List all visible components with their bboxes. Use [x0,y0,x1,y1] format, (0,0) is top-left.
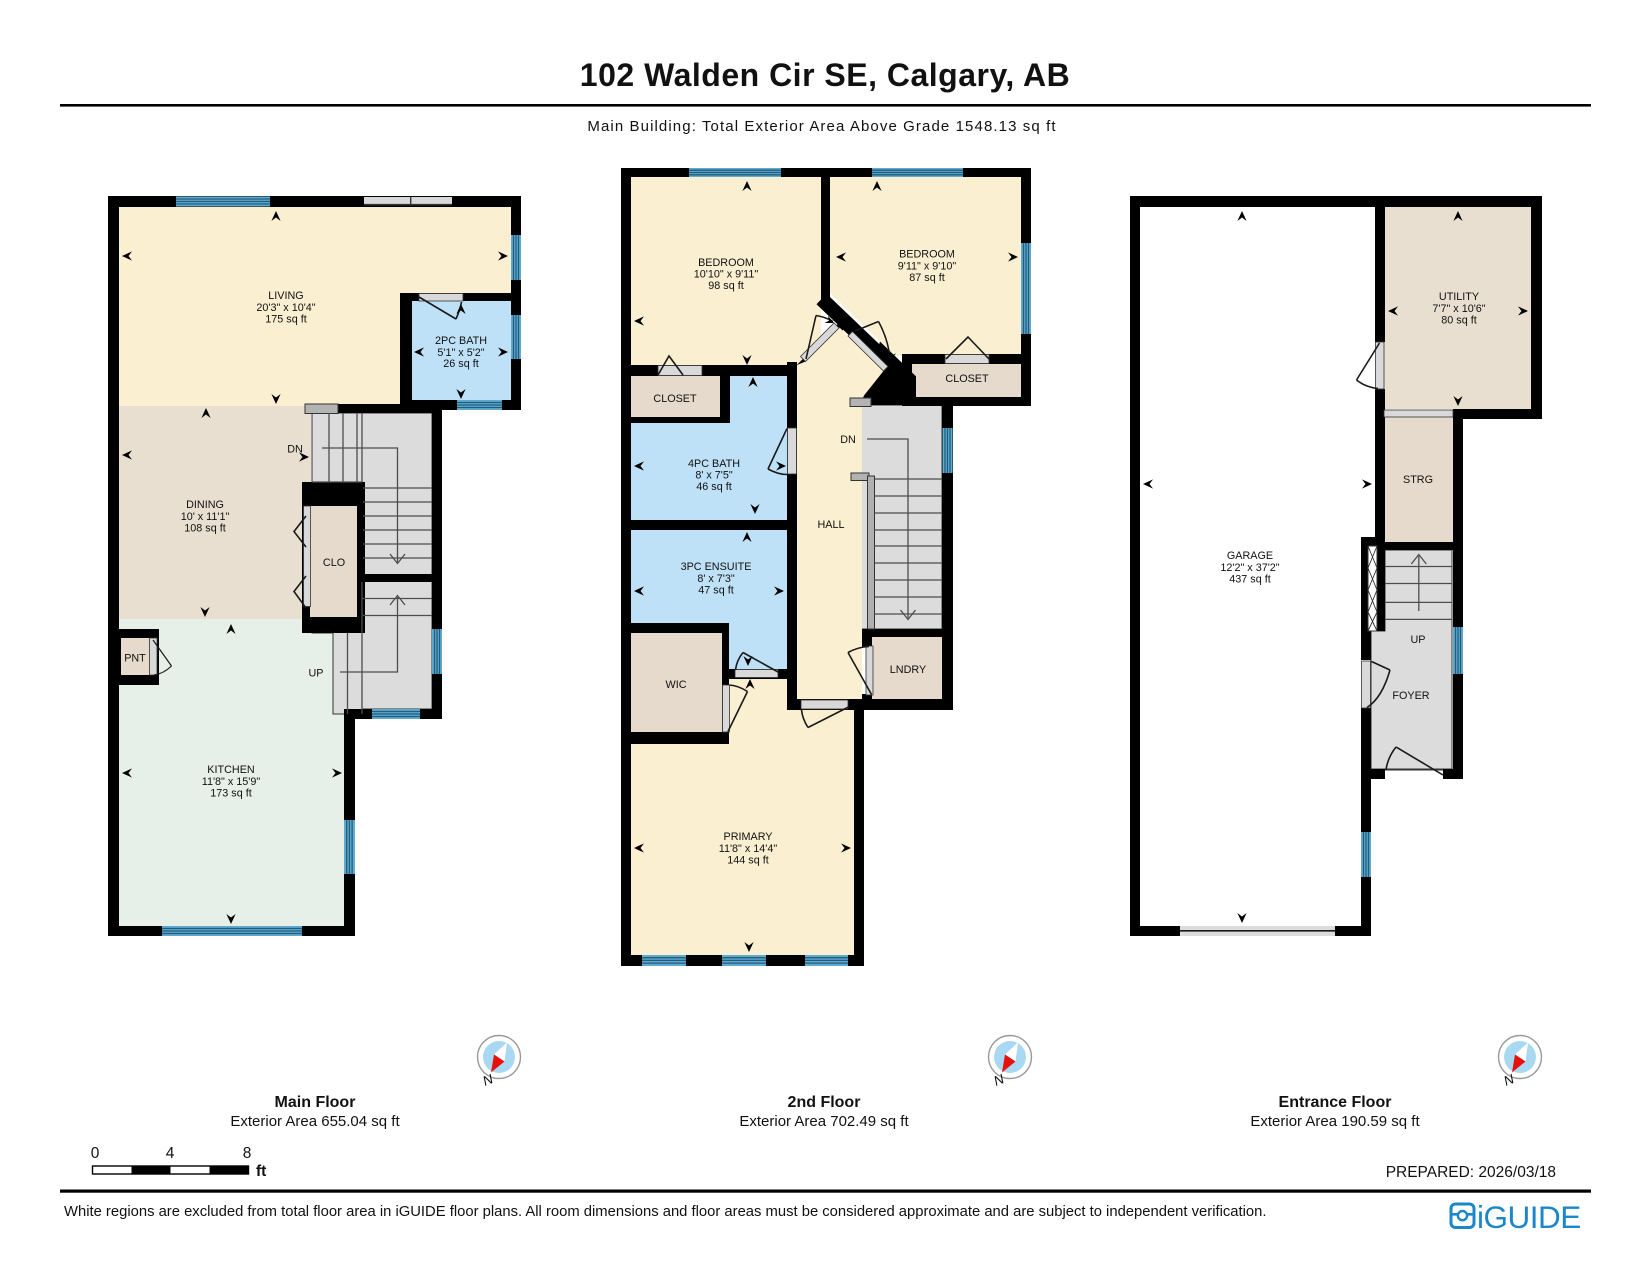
svg-text:Main Floor: Main Floor [275,1094,356,1111]
svg-text:Entrance Floor: Entrance Floor [1279,1094,1392,1111]
svg-text:Exterior Area 702.49 sq ft: Exterior Area 702.49 sq ft [739,1113,909,1130]
svg-text:PRIMARY: PRIMARY [724,831,773,843]
svg-text:11'8" x 15'9": 11'8" x 15'9" [202,776,261,788]
svg-text:PREPARED: 2026/03/18: PREPARED: 2026/03/18 [1386,1164,1556,1181]
svg-text:20'3" x 10'4": 20'3" x 10'4" [256,302,315,314]
svg-text:PNT: PNT [124,653,146,665]
svg-text:102 Walden Cir SE, Calgary, AB: 102 Walden Cir SE, Calgary, AB [580,57,1070,93]
svg-text:8: 8 [243,1145,252,1162]
svg-text:Main Building: Total Exterior: Main Building: Total Exterior Area Above… [587,118,1056,135]
svg-text:ft: ft [256,1163,266,1180]
svg-text:CLOSET: CLOSET [945,373,989,385]
svg-text:GARAGE: GARAGE [1227,550,1273,562]
svg-text:2nd Floor: 2nd Floor [788,1094,861,1111]
svg-text:iGUIDE: iGUIDE [1477,1199,1581,1235]
svg-text:CLOSET: CLOSET [653,393,697,405]
svg-text:White regions are excluded fro: White regions are excluded from total fl… [64,1204,1266,1220]
svg-text:CLO: CLO [323,557,345,569]
svg-text:47 sq ft: 47 sq ft [698,585,733,597]
svg-text:12'2" x 37'2": 12'2" x 37'2" [1220,562,1279,574]
svg-text:80 sq ft: 80 sq ft [1441,315,1476,327]
svg-text:WIC: WIC [666,679,687,691]
svg-text:HALL: HALL [817,519,844,531]
svg-text:9'11" x 9'10": 9'11" x 9'10" [898,261,957,273]
svg-text:LNDRY: LNDRY [890,664,926,676]
svg-text:0: 0 [91,1145,100,1162]
svg-text:144 sq ft: 144 sq ft [727,855,768,867]
svg-text:LIVING: LIVING [268,290,303,302]
svg-text:26 sq ft: 26 sq ft [443,358,478,370]
svg-text:87 sq ft: 87 sq ft [909,272,944,284]
svg-text:8' x 7'5": 8' x 7'5" [695,470,733,482]
svg-text:46 sq ft: 46 sq ft [696,481,731,493]
svg-text:BEDROOM: BEDROOM [899,249,955,261]
svg-text:BEDROOM: BEDROOM [698,257,754,269]
svg-text:UTILITY: UTILITY [1439,291,1479,303]
svg-text:UP: UP [309,668,324,680]
svg-text:3PC ENSUITE: 3PC ENSUITE [681,561,752,573]
svg-text:Exterior Area 190.59 sq ft: Exterior Area 190.59 sq ft [1250,1113,1420,1130]
svg-text:DINING: DINING [186,499,224,511]
svg-text:11'8" x 14'4": 11'8" x 14'4" [719,843,778,855]
svg-text:175 sq ft: 175 sq ft [265,314,306,326]
svg-text:FOYER: FOYER [1392,690,1429,702]
svg-text:UP: UP [1411,634,1426,646]
svg-text:10'10" x 9'11": 10'10" x 9'11" [694,269,759,281]
svg-text:2PC BATH: 2PC BATH [435,335,487,347]
svg-text:7'7" x 10'6": 7'7" x 10'6" [1432,303,1485,315]
svg-text:DN: DN [840,434,856,446]
svg-text:Exterior Area 655.04 sq ft: Exterior Area 655.04 sq ft [230,1113,400,1130]
svg-text:4: 4 [166,1145,175,1162]
svg-text:4PC BATH: 4PC BATH [688,458,740,470]
svg-text:108 sq ft: 108 sq ft [184,523,225,535]
svg-text:437 sq ft: 437 sq ft [1229,574,1270,586]
svg-text:STRG: STRG [1403,474,1433,486]
svg-text:KITCHEN: KITCHEN [207,764,254,776]
svg-text:173 sq ft: 173 sq ft [210,788,251,800]
svg-text:10' x 11'1": 10' x 11'1" [181,511,230,523]
svg-text:98 sq ft: 98 sq ft [708,280,743,292]
svg-text:8' x 7'3": 8' x 7'3" [697,573,735,585]
